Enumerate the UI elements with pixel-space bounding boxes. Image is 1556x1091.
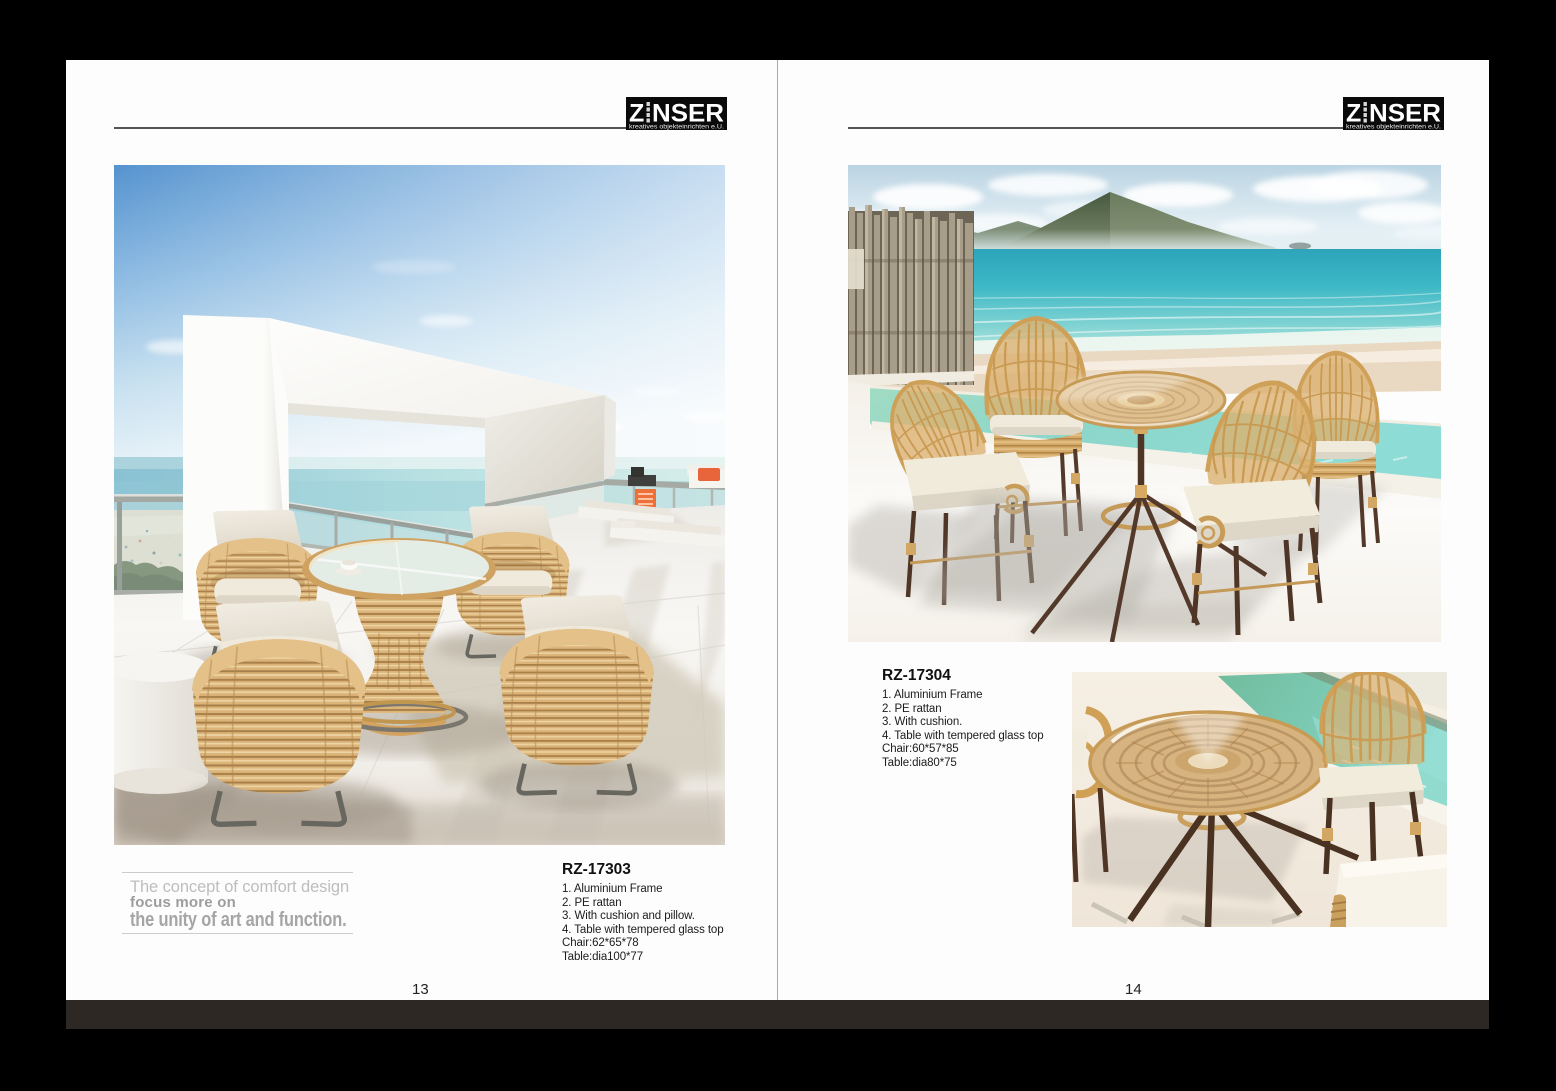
svg-text:kreatives objekteinrichten e.U: kreatives objekteinrichten e.U. — [1346, 124, 1441, 131]
svg-text:kreatives objekteinrichten e.U: kreatives objekteinrichten e.U. — [629, 124, 724, 131]
